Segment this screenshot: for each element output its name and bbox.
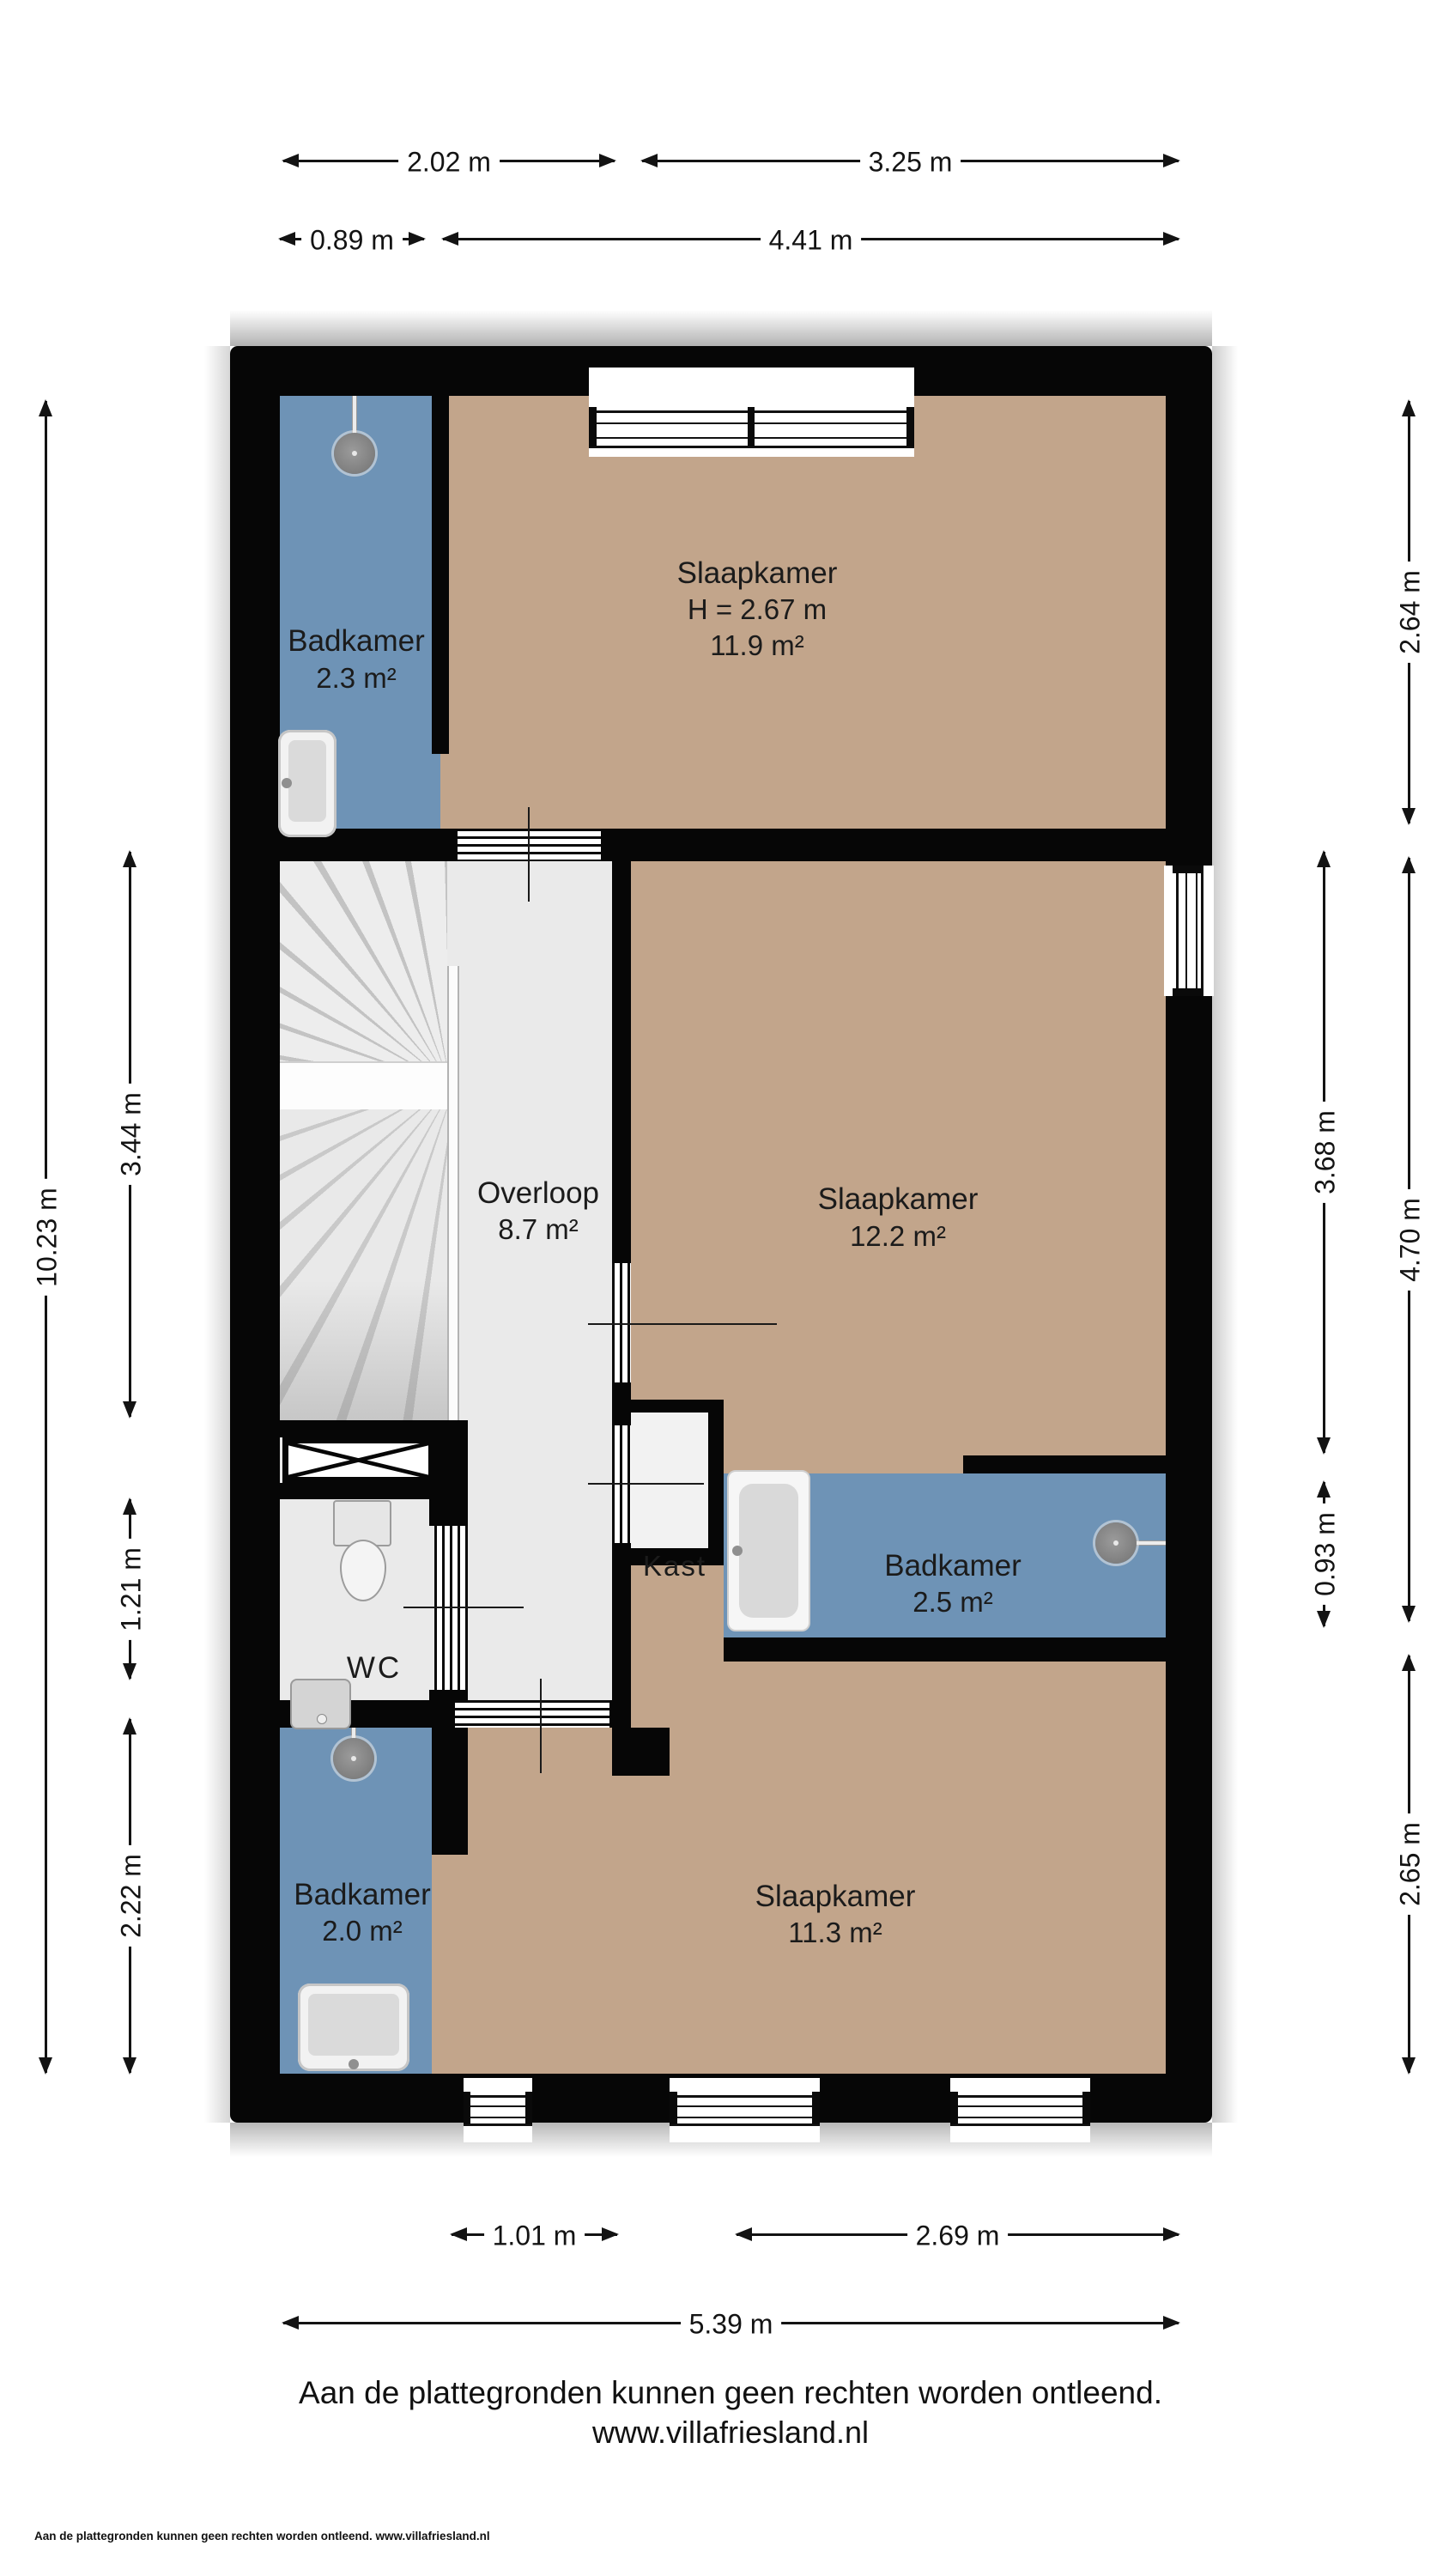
plan-shadow-top [230,310,1212,346]
dim-label: 3.68 m [1310,1102,1342,1203]
dim-top2-left: 0.89 m [280,238,424,240]
dim-label: 2.64 m [1395,562,1427,663]
washbasin-bowl [288,740,326,822]
wall [724,1637,1166,1662]
wall [612,861,631,1263]
dim-right-outer-mid: 4.70 m [1408,858,1410,1621]
window-glass-lines [670,2105,820,2118]
wall [432,1728,468,1855]
wall [429,1690,468,1700]
wall [432,396,449,754]
dim-label: 1.21 m [116,1539,148,1640]
window-frame [464,2095,532,2126]
label-slaapkamer-bottom: Slaapkamer [755,1880,916,1914]
window-bottom-1 [464,2078,532,2142]
window-right [1164,866,1214,996]
label-overloop: Overloop [477,1176,599,1211]
dim-label: 0.89 m [301,225,403,257]
dim-left-badkamer: 2.22 m [129,1719,131,2073]
plan-shadow-right [1212,346,1238,2123]
dim-label: 4.70 m [1395,1189,1427,1291]
bathtub-inner [739,1484,798,1618]
dim-top2-right: 4.41 m [443,238,1179,240]
washbasin-tap [349,2059,359,2069]
dim-label: 0.93 m [1310,1504,1342,1605]
door-tick [540,1679,542,1773]
dim-right-outer-bottom: 2.65 m [1408,1656,1410,2073]
label-badkamer-bottom-area: 2.0 m² [322,1915,403,1947]
shower-head-icon [334,433,375,474]
bathtub [727,1470,810,1631]
label-kast: Kast [643,1550,706,1583]
label-badkamer-mid: Badkamer [884,1549,1022,1583]
staircase-landing-band [280,1061,447,1113]
plan-shadow-left [204,346,230,2123]
wall [963,1455,1166,1473]
label-badkamer-top-area: 2.3 m² [316,662,397,695]
window-cap [1173,866,1202,873]
washbasin-tap [282,778,292,788]
wall [612,1728,670,1776]
washbasin [278,730,336,837]
dim-top-right: 3.25 m [642,160,1179,162]
dim-right-inner-top: 3.68 m [1323,852,1325,1453]
wall [612,1543,631,1700]
dim-label: 2.02 m [398,147,500,179]
dim-right-inner-bottom: 0.93 m [1323,1482,1325,1626]
dim-label: 2.69 m [907,2221,1009,2252]
label-slaapkamer-mid: Slaapkamer [818,1182,979,1217]
wall [429,1420,468,1526]
dim-top-left: 2.02 m [283,160,615,162]
label-badkamer-top: Badkamer [288,624,425,659]
room-slaapkamer-mid-floor [631,861,1166,1473]
window-top [589,368,914,457]
wc-sink [290,1679,351,1729]
label-badkamer-bottom: Badkamer [294,1878,431,1912]
window-cap [464,2092,470,2124]
window-bottom-2 [670,2078,820,2142]
label-slaapkamer-top: Slaapkamer [677,556,838,591]
dim-left-stairs: 3.44 m [129,852,131,1417]
window-cap [1173,988,1202,996]
window-frame [1176,866,1203,996]
staircase-winder-treads [280,861,447,1061]
label-wc: WC [347,1651,402,1686]
window-frame [950,2095,1090,2126]
dim-label: 3.25 m [860,147,961,179]
dim-bottom-left: 1.01 m [452,2233,617,2236]
label-overloop-area: 8.7 m² [498,1213,579,1246]
window-glass-lines [1185,866,1197,996]
washbasin-bowl [308,1994,399,2056]
washbasin [298,1984,409,2071]
staircase-banister [447,966,459,1420]
dim-label: 2.65 m [1395,1814,1427,1915]
dim-right-outer-top: 2.64 m [1408,401,1410,823]
shaft-void-box [282,1437,434,1483]
open-passage-badkamer-top [432,754,449,829]
window-mullion [748,407,755,447]
wall [708,1400,724,1565]
wall [280,829,1166,861]
window-glass-lines [950,2105,1090,2118]
window-cap [589,407,597,447]
dim-label: 10.23 m [32,1179,64,1296]
dim-label: 2.22 m [116,1845,148,1947]
window-glass-lines [464,2105,532,2118]
window-cap [670,2092,677,2124]
dim-bottom-total: 5.39 m [283,2322,1179,2324]
label-slaapkamer-top-area: 11.9 m² [710,629,803,662]
window-cap [906,407,914,447]
window-cap [525,2092,532,2124]
room-kast-floor [631,1413,708,1548]
staircase-lower-treads [280,1109,447,1420]
footer-disclaimer: Aan de plattegronden kunnen geen rechten… [299,2375,1162,2411]
label-slaapkamer-top-height: H = 2.67 m [688,593,827,626]
footer-website: www.villafriesland.nl [592,2415,869,2451]
dim-bottom-right: 2.69 m [737,2233,1179,2236]
door-tick [588,1323,777,1325]
window-frame [670,2095,820,2126]
dim-left-wc: 1.21 m [129,1499,131,1679]
window-cap [812,2092,820,2124]
label-slaapkamer-mid-area: 12.2 m² [850,1220,946,1253]
door-tick [528,807,530,902]
dim-label: 5.39 m [681,2309,782,2341]
dim-label: 1.01 m [484,2221,585,2252]
door-tick [403,1607,524,1608]
dim-label: 3.44 m [116,1084,148,1185]
dim-label: 4.41 m [761,225,862,257]
dim-left-total: 10.23 m [45,401,47,2073]
shower-head-icon [333,1738,374,1779]
footnote-disclaimer: Aan de plattegronden kunnen geen rechten… [34,2530,490,2543]
window-bottom-3 [950,2078,1090,2142]
door-opening-slaapkamer-bottom [455,1700,609,1728]
window-cap [950,2092,958,2124]
window-cap [1082,2092,1090,2124]
label-badkamer-mid-area: 2.5 m² [912,1586,993,1619]
shower-head-icon [1095,1522,1137,1564]
floorplan-page: 2.02 m 3.25 m 0.89 m 4.41 m 10.23 m 3.44… [0,0,1449,2576]
x-cross-icon [288,1443,428,1477]
wall [612,1382,631,1425]
bathtub-tap [732,1546,743,1556]
label-slaapkamer-bottom-area: 11.3 m² [788,1917,882,1949]
door-tick [588,1483,704,1485]
